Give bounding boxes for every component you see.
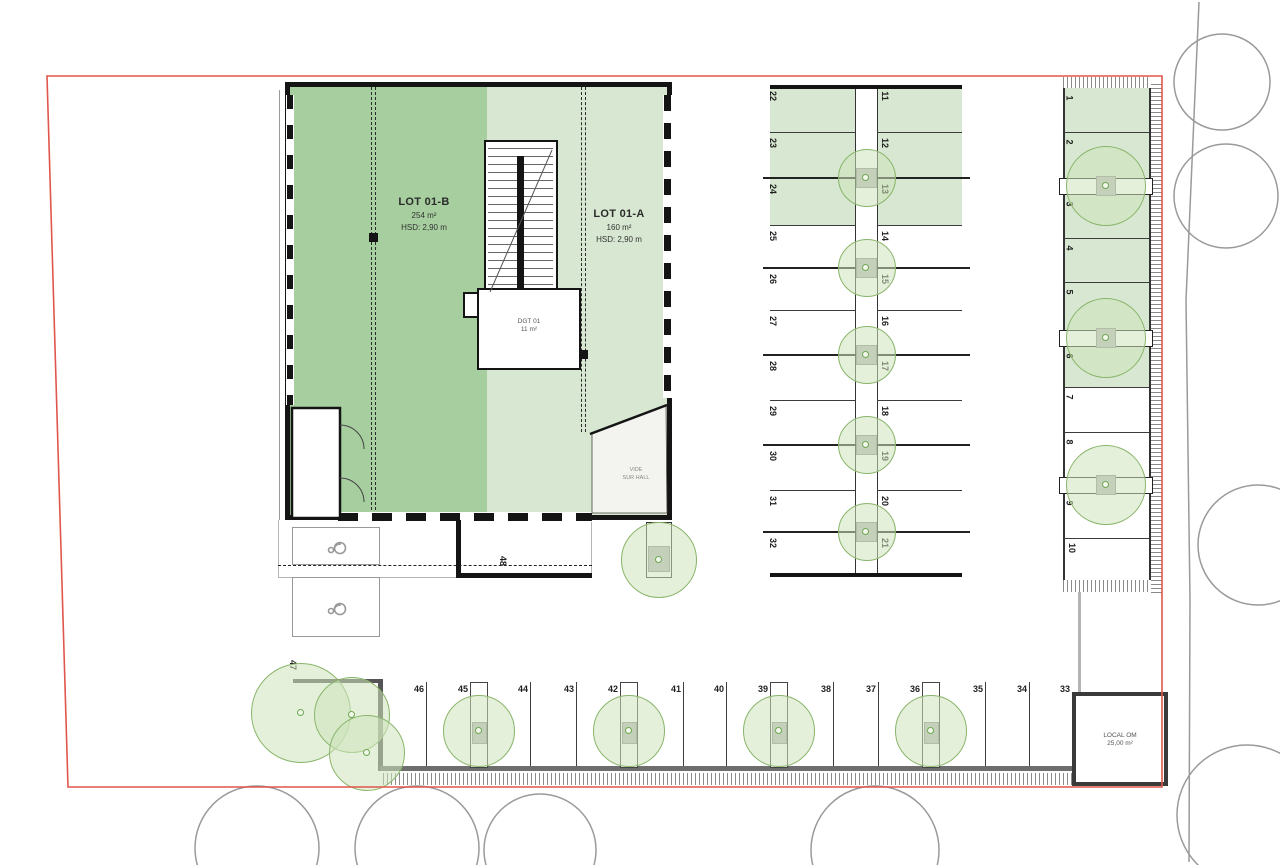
east-wall-dashes bbox=[664, 95, 671, 398]
parking-space-number: 42 bbox=[594, 684, 618, 694]
tree-trunk-dot bbox=[862, 441, 869, 448]
parking-divider bbox=[770, 310, 856, 311]
fence-hatch-south bbox=[383, 773, 1168, 785]
wheelchair-icon bbox=[325, 535, 349, 559]
parking-space-number: 45 bbox=[444, 684, 468, 694]
parking-space-number: 27 bbox=[768, 316, 778, 326]
tree-trunk-dot bbox=[775, 727, 782, 734]
parking-space-number: 1 bbox=[1067, 93, 1072, 103]
parking-space-number: 39 bbox=[744, 684, 768, 694]
tree-trunk-dot bbox=[655, 556, 662, 563]
parking-divider bbox=[426, 682, 427, 768]
parking-space-number: 7 bbox=[1067, 392, 1072, 402]
parking-divider bbox=[770, 490, 856, 491]
lot-01-a-hsd-text: HSD: 2,90 m bbox=[559, 235, 679, 244]
parking-space-number: 30 bbox=[768, 451, 778, 461]
tree-trunk-dot bbox=[475, 727, 482, 734]
fence-hatch-rightcol-bottom bbox=[1063, 580, 1151, 592]
tree-trunk-dot bbox=[297, 709, 304, 716]
parking-space-number: 32 bbox=[768, 538, 778, 548]
vide-line2: SUR HALL bbox=[606, 474, 666, 482]
utility-line bbox=[1078, 592, 1081, 692]
joint-line bbox=[371, 87, 376, 515]
tree-trunk-dot bbox=[862, 174, 869, 181]
fence-hatch-northeast bbox=[1063, 77, 1151, 88]
lot-01-b-hsd-text: HSD: 2,90 m bbox=[364, 223, 484, 232]
parking-divider bbox=[726, 682, 727, 768]
stairwell bbox=[484, 140, 558, 300]
parking-space-number: 40 bbox=[700, 684, 724, 694]
parking-space-number: 26 bbox=[768, 274, 778, 284]
parking-divider bbox=[877, 490, 962, 491]
accessible-space-2 bbox=[292, 577, 380, 637]
wheelchair-icon bbox=[325, 596, 349, 620]
parking-divider bbox=[833, 682, 834, 768]
tree-trunk-dot bbox=[363, 749, 370, 756]
parking-space-number: 31 bbox=[768, 496, 778, 506]
parking-divider bbox=[1029, 682, 1030, 768]
tree-trunk-dot bbox=[927, 727, 934, 734]
parking-divider bbox=[878, 682, 879, 768]
vide-sur-hall-label: VIDE SUR HALL bbox=[606, 466, 666, 482]
parking-divider bbox=[1063, 387, 1149, 388]
parking-wall-top bbox=[770, 85, 962, 89]
parking-space-number: 14 bbox=[880, 231, 890, 241]
parking-space-number: 37 bbox=[852, 684, 876, 694]
tree-trunk-dot bbox=[1102, 182, 1109, 189]
joint-node bbox=[369, 233, 378, 242]
road-line bbox=[1186, 2, 1199, 862]
tree-trunk-dot bbox=[1102, 481, 1109, 488]
local-om-area: 25,00 m² bbox=[1076, 740, 1164, 748]
vide-line1: VIDE bbox=[606, 466, 666, 474]
parking-divider bbox=[1063, 538, 1149, 539]
parking-divider bbox=[1063, 238, 1149, 239]
parking-space-number: 36 bbox=[896, 684, 920, 694]
local-om-box: LOCAL OM 25,00 m² bbox=[1072, 692, 1168, 786]
parking-divider bbox=[1063, 432, 1149, 433]
lot-01-a-label: LOT 01-A 160 m² HSD: 2,90 m bbox=[559, 208, 679, 244]
parking-space-number: 22 bbox=[768, 91, 778, 101]
parking-space-number: 10 bbox=[1067, 543, 1077, 553]
dgt-room-name: DGT 01 bbox=[479, 318, 579, 326]
parking-divider bbox=[530, 682, 531, 768]
canopy-dashed-edge bbox=[278, 565, 592, 566]
facade-line bbox=[279, 90, 280, 520]
parking-space-number: 2 bbox=[1067, 137, 1072, 147]
parking-space-number: 12 bbox=[880, 138, 890, 148]
tree-trunk-dot bbox=[862, 351, 869, 358]
canopy-wall-horizontal bbox=[456, 573, 592, 578]
parking-space-number: 8 bbox=[1067, 437, 1072, 447]
parking-divider bbox=[576, 682, 577, 768]
storefront-dashes bbox=[338, 513, 592, 521]
parking-space-number: 25 bbox=[768, 231, 778, 241]
parking-divider bbox=[877, 132, 962, 133]
parking-space-number: 20 bbox=[880, 496, 890, 506]
accessible-space-1 bbox=[292, 527, 380, 565]
parking-divider bbox=[1063, 132, 1149, 133]
parking-divider bbox=[877, 400, 962, 401]
parking-space-number: 24 bbox=[768, 184, 778, 194]
parking-space-number: 33 bbox=[1046, 684, 1070, 694]
site-plan: DGT 01 11 m² LOT 01-B 254 m² HSD: 2,90 m… bbox=[0, 0, 1280, 865]
parking-space-number: 29 bbox=[768, 406, 778, 416]
parking-divider bbox=[985, 682, 986, 768]
dgt-room: DGT 01 11 m² bbox=[477, 288, 581, 370]
local-om-name: LOCAL OM bbox=[1076, 732, 1164, 740]
parking-divider bbox=[877, 225, 962, 226]
parking-space-number: 4 bbox=[1067, 243, 1072, 253]
parking-wall-bottom bbox=[770, 573, 962, 577]
parking-space-number: 41 bbox=[657, 684, 681, 694]
lot-01-b-area-text: 254 m² bbox=[364, 211, 484, 220]
joint-line bbox=[581, 87, 586, 432]
lot-01-b-label: LOT 01-B 254 m² HSD: 2,90 m bbox=[364, 196, 484, 232]
lot-01-b-area bbox=[290, 87, 487, 515]
parking-space-number: 38 bbox=[807, 684, 831, 694]
lot-01-b-name: LOT 01-B bbox=[364, 196, 484, 208]
tree-trunk-dot bbox=[1102, 334, 1109, 341]
parking-divider bbox=[877, 310, 962, 311]
parking-space-number: 28 bbox=[768, 361, 778, 371]
parking-space-number: 34 bbox=[1003, 684, 1027, 694]
parking-space-number: 16 bbox=[880, 316, 890, 326]
parking-space-number: 43 bbox=[550, 684, 574, 694]
tree-trunk-dot bbox=[625, 727, 632, 734]
west-wall-dashes bbox=[287, 95, 293, 405]
parking-space-number: 44 bbox=[504, 684, 528, 694]
lot-01-a-name: LOT 01-A bbox=[559, 208, 679, 220]
parking-space-number: 48 bbox=[498, 556, 508, 566]
parking-space-number: 11 bbox=[880, 91, 890, 101]
parking-space-number: 46 bbox=[400, 684, 424, 694]
parking-space-number: 18 bbox=[880, 406, 890, 416]
canopy-wall-vertical bbox=[456, 520, 461, 576]
stair-stringer bbox=[517, 156, 524, 296]
parking-space-number: 35 bbox=[959, 684, 983, 694]
parking-divider bbox=[683, 682, 684, 768]
parking-space-number: 23 bbox=[768, 138, 778, 148]
parking-divider bbox=[1063, 282, 1149, 283]
tree-trunk-dot bbox=[862, 528, 869, 535]
tree-trunk-dot bbox=[348, 711, 355, 718]
parking-divider bbox=[770, 132, 856, 133]
lot-01-a-area-text: 160 m² bbox=[559, 223, 679, 232]
dgt-room-area: 11 m² bbox=[479, 326, 579, 334]
parking-space-number: 5 bbox=[1067, 287, 1072, 297]
parking-divider bbox=[770, 400, 856, 401]
parking-divider bbox=[770, 225, 856, 226]
tree-trunk-dot bbox=[862, 264, 869, 271]
